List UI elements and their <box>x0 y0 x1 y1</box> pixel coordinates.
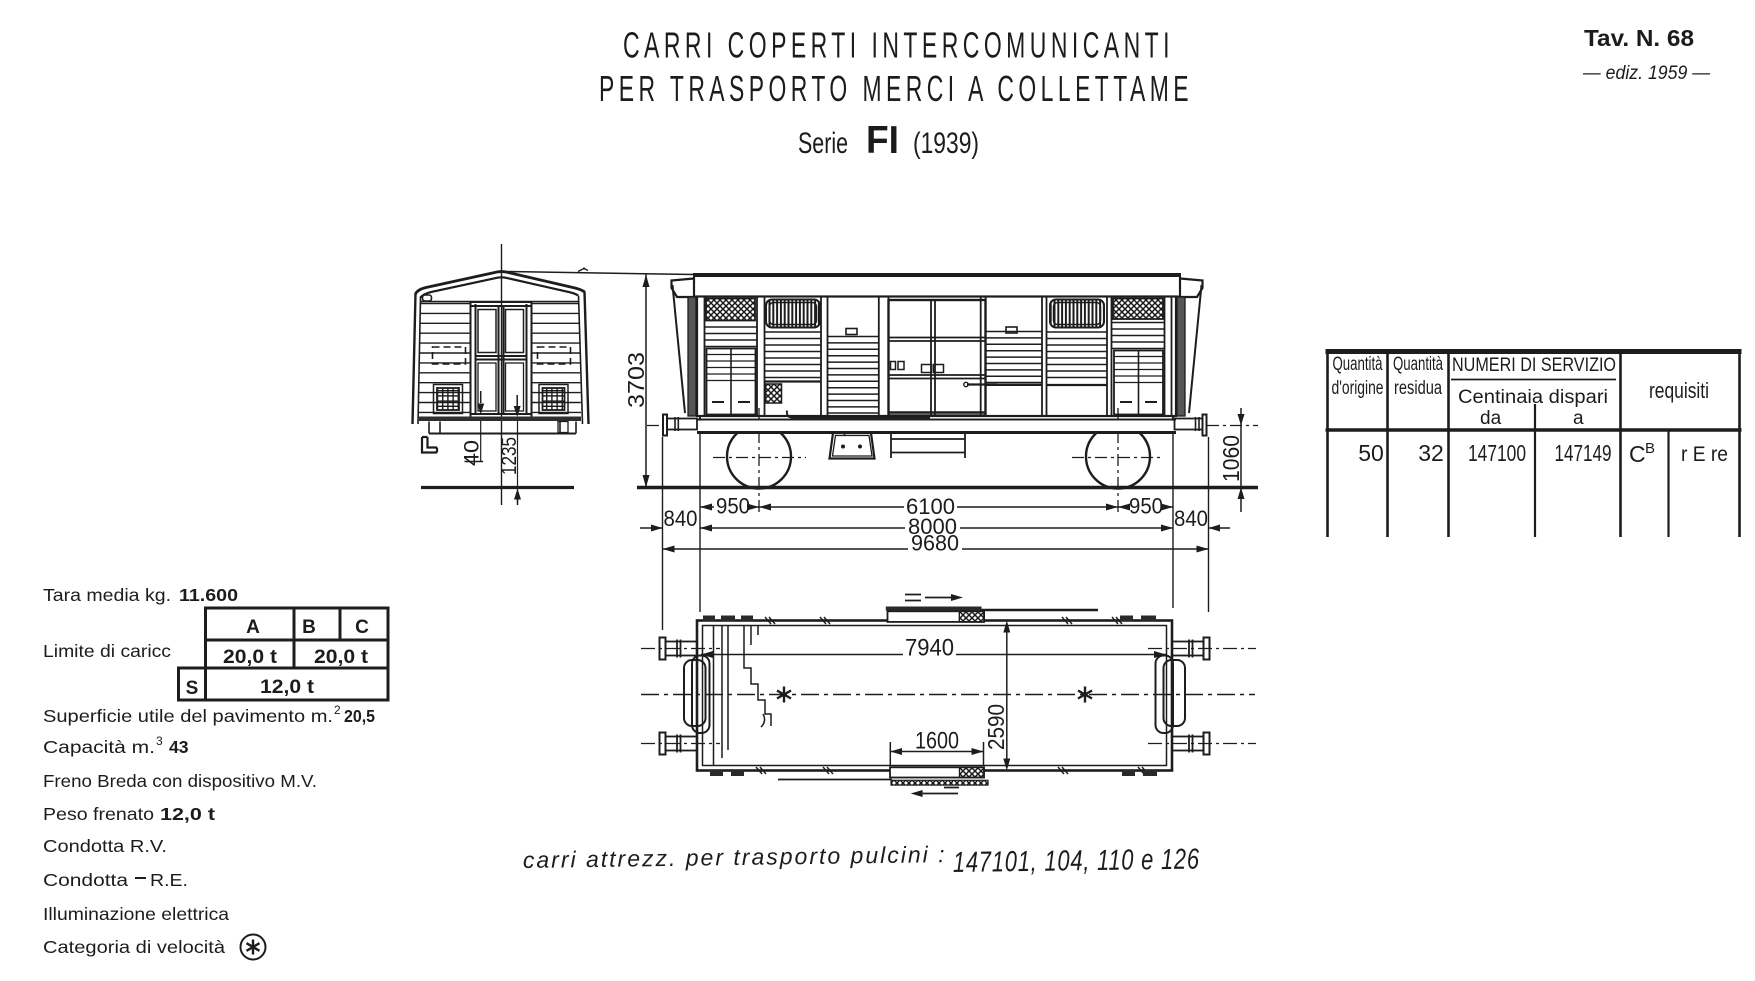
svg-text:Centinaia dispari: Centinaia dispari <box>1458 387 1608 408</box>
svg-text:Superficie utile del pavime: Superficie utile del pavimento m. <box>43 706 333 726</box>
svg-text:3703: 3703 <box>623 352 649 408</box>
svg-text:Condotta: Condotta <box>43 870 128 890</box>
svg-text:Categoria di velocità: Categoria di velocità <box>43 937 225 957</box>
svg-text:950: 950 <box>1129 494 1163 519</box>
svg-text:840: 840 <box>664 506 698 531</box>
svg-text:C: C <box>1629 441 1646 467</box>
svg-text:Illuminazione elettrica: Illuminazione elettrica <box>43 904 229 924</box>
svg-text:residua: residua <box>1394 378 1442 399</box>
svg-text:1060: 1060 <box>1218 435 1244 482</box>
svg-text:Capacità m.: Capacità m. <box>43 737 155 757</box>
svg-text:C: C <box>355 617 369 638</box>
svg-text:1235: 1235 <box>498 437 521 475</box>
svg-text:carri attrezz. per trasport: carri attrezz. per trasporto pulcini : <box>523 841 947 873</box>
svg-text:Freno Breda con dispositivo: Freno Breda con dispositivo M.V. <box>43 771 317 791</box>
svg-text:147100: 147100 <box>1468 440 1526 466</box>
svg-text:1600: 1600 <box>915 728 959 755</box>
svg-text:Quantità: Quantità <box>1393 354 1443 375</box>
svg-text:B: B <box>1645 440 1655 457</box>
svg-text:840: 840 <box>1174 506 1208 531</box>
svg-text:950: 950 <box>716 494 750 519</box>
svg-text:20,5: 20,5 <box>344 706 375 726</box>
svg-text:S: S <box>186 678 199 699</box>
svg-text:Tara media kg.: Tara media kg. <box>43 585 171 605</box>
svg-text:2590: 2590 <box>983 704 1009 750</box>
svg-text:Quantità: Quantità <box>1333 354 1383 375</box>
svg-text:Limite di caricc: Limite di caricc <box>43 641 171 661</box>
svg-text:12,0 t: 12,0 t <box>160 804 215 824</box>
svg-text:B: B <box>302 617 316 638</box>
svg-text:11.600: 11.600 <box>179 585 238 605</box>
svg-text:A: A <box>246 617 260 638</box>
svg-text:a: a <box>1573 408 1584 429</box>
svg-text:FI: FI <box>866 119 899 162</box>
svg-text:50: 50 <box>1358 440 1384 466</box>
svg-text:40: 40 <box>461 440 484 466</box>
svg-text:32: 32 <box>1418 440 1444 466</box>
svg-text:20,0 t: 20,0 t <box>314 647 369 668</box>
svg-text:3: 3 <box>156 734 163 748</box>
svg-text:43: 43 <box>169 737 189 757</box>
svg-text:Serie: Serie <box>798 127 848 160</box>
svg-text:147149: 147149 <box>1555 440 1612 466</box>
svg-text:CARRI COPERTI INTERCOMUNICANTI: CARRI COPERTI INTERCOMUNICANTI <box>623 25 1174 66</box>
svg-text:Peso frenato: Peso frenato <box>43 804 154 824</box>
svg-text:d'origine: d'origine <box>1332 378 1384 399</box>
svg-text:NUMERI DI SERVIZIO: NUMERI DI SERVIZIO <box>1452 355 1616 376</box>
svg-text:— ediz. 1959 —: — ediz. 1959 — <box>1582 63 1711 84</box>
svg-text:r E re: r E re <box>1681 443 1728 466</box>
svg-text:12,0 t: 12,0 t <box>260 677 315 698</box>
svg-text:147101, 104, 110 e 126: 147101, 104, 110 e 126 <box>953 844 1200 879</box>
svg-text:9680: 9680 <box>911 531 959 556</box>
svg-text:da: da <box>1480 408 1502 429</box>
svg-text:7940: 7940 <box>905 635 954 662</box>
svg-text:2: 2 <box>334 703 341 717</box>
svg-text:R.E.: R.E. <box>150 870 188 890</box>
svg-text:PER TRASPORTO MERCI A COLLETTA: PER TRASPORTO MERCI A COLLETTAME <box>599 68 1193 109</box>
svg-text:(1939): (1939) <box>913 127 979 160</box>
svg-text:Condotta R.V.: Condotta R.V. <box>43 836 167 856</box>
svg-text:Tav. N. 68: Tav. N. 68 <box>1584 25 1694 51</box>
svg-text:20,0 t: 20,0 t <box>223 647 278 668</box>
svg-text:requisiti: requisiti <box>1649 378 1709 403</box>
